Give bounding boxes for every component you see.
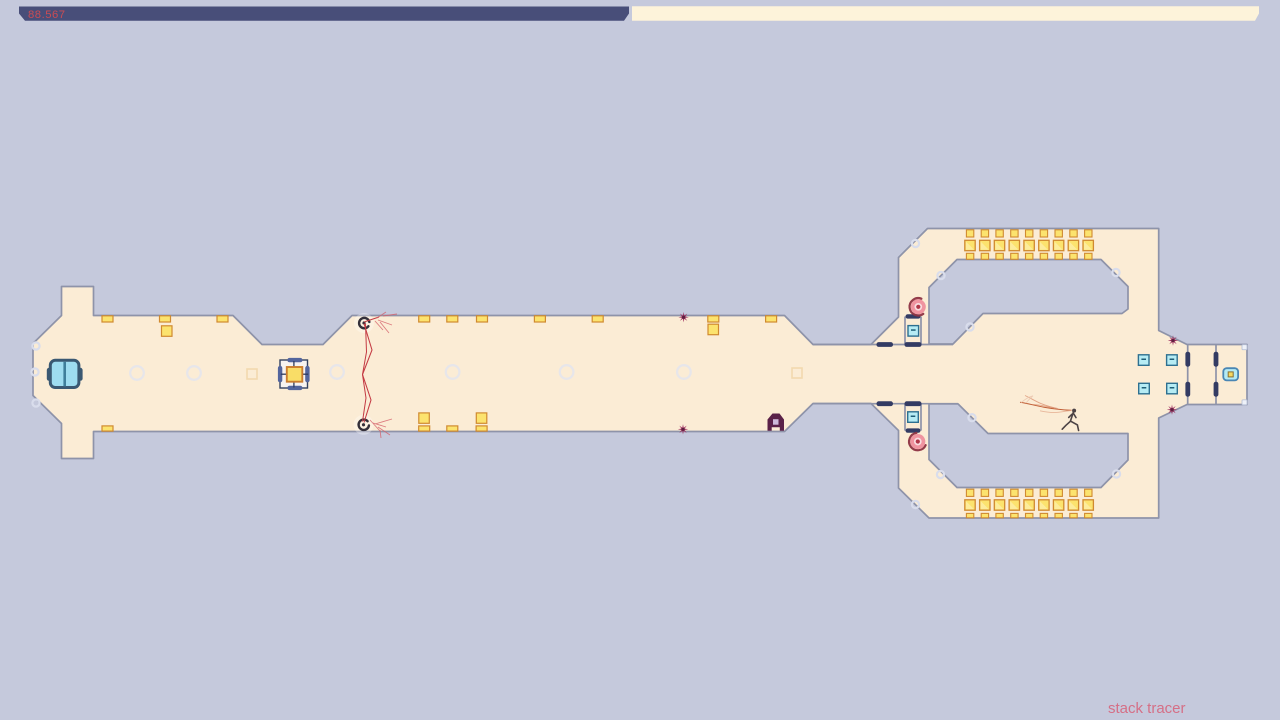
svg-text:stack tracer: stack tracer (1108, 700, 1186, 717)
svg-text:88.567: 88.567 (28, 9, 66, 21)
